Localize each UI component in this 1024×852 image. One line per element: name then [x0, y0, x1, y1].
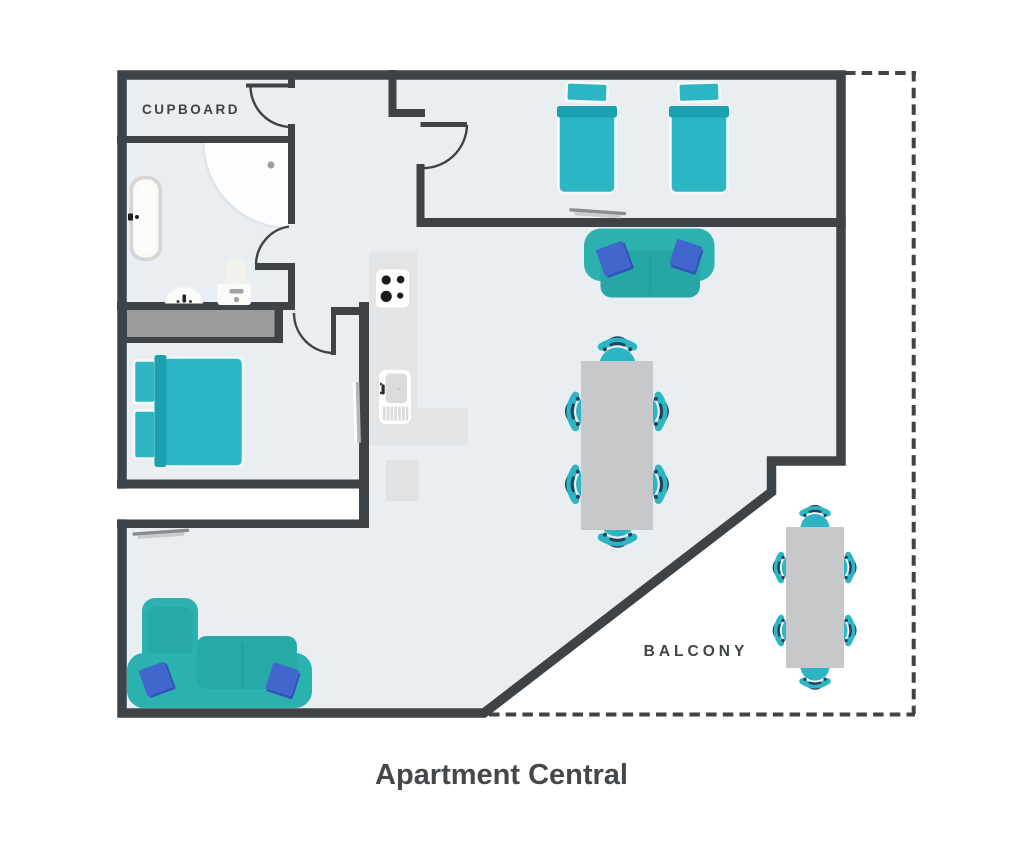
svg-text:Apartment Central: Apartment Central — [375, 759, 628, 791]
svg-text:BALCONY: BALCONY — [644, 643, 749, 660]
svg-text:CUPBOARD: CUPBOARD — [142, 102, 240, 117]
